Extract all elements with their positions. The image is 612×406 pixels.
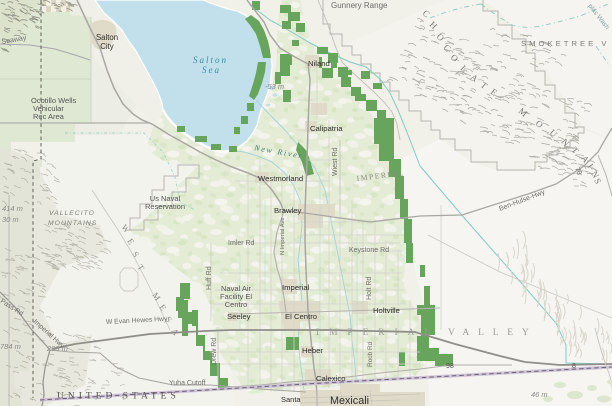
svg-text:Holt Rd: Holt Rd (366, 277, 373, 300)
svg-text:IMPERIAL: IMPERIAL (316, 328, 440, 338)
svg-text:Drew Rd: Drew Rd (211, 338, 218, 365)
svg-text:UNITED STATES: UNITED STATES (57, 392, 180, 402)
svg-text:Brawley: Brawley (274, 206, 301, 215)
svg-text:Reservation: Reservation (145, 202, 185, 211)
svg-text:Niland: Niland (308, 59, 330, 68)
svg-text:Salton: Salton (96, 33, 118, 42)
svg-text:Keystone Rd: Keystone Rd (349, 247, 389, 254)
svg-text:Wiest Rd: Wiest Rd (332, 148, 339, 177)
svg-text:Huff Rd: Huff Rd (206, 266, 213, 290)
svg-text:-53 m: -53 m (265, 82, 284, 91)
svg-text:Gunnery Range: Gunnery Range (331, 1, 388, 10)
svg-text:City: City (100, 42, 114, 51)
svg-text:Calexico: Calexico (316, 374, 345, 383)
svg-text:98: 98 (446, 363, 454, 370)
svg-text:8: 8 (572, 363, 576, 370)
svg-text:MOUNTAINS: MOUNTAINS (48, 220, 97, 227)
svg-text:Imperial: Imperial (282, 283, 310, 292)
svg-text:Rec Area: Rec Area (33, 112, 65, 121)
svg-text:Rocb Rd: Rocb Rd (367, 341, 374, 367)
svg-text:Yuha Cutoff: Yuha Cutoff (169, 380, 206, 387)
svg-text:Centro: Centro (225, 300, 248, 309)
svg-text:298 m: 298 m (46, 344, 68, 353)
svg-text:Sea: Sea (202, 65, 221, 75)
svg-text:Imler Rd: Imler Rd (228, 240, 255, 247)
svg-text:VALLECITO: VALLECITO (49, 210, 95, 217)
svg-text:Calipatria: Calipatria (310, 124, 343, 133)
svg-text:30 m: 30 m (2, 215, 19, 224)
svg-text:VALLEY: VALLEY (448, 328, 538, 338)
svg-text:Santa: Santa (281, 395, 301, 404)
svg-text:SMOKETREE V: SMOKETREE V (521, 39, 610, 48)
svg-text:Salton: Salton (193, 55, 228, 65)
svg-text:Heber: Heber (302, 346, 323, 355)
svg-text:El Centro: El Centro (285, 312, 317, 321)
svg-text:46 m: 46 m (531, 390, 548, 399)
svg-text:Holtville: Holtville (373, 306, 400, 315)
svg-text:Westmorland: Westmorland (258, 174, 303, 183)
svg-text:784 m: 784 m (0, 342, 21, 351)
svg-text:Seeley: Seeley (227, 312, 251, 321)
svg-text:Mexicali: Mexicali (330, 395, 369, 406)
svg-text:414 m: 414 m (2, 204, 23, 213)
svg-text:N Imperial Ave: N Imperial Ave (280, 217, 286, 255)
